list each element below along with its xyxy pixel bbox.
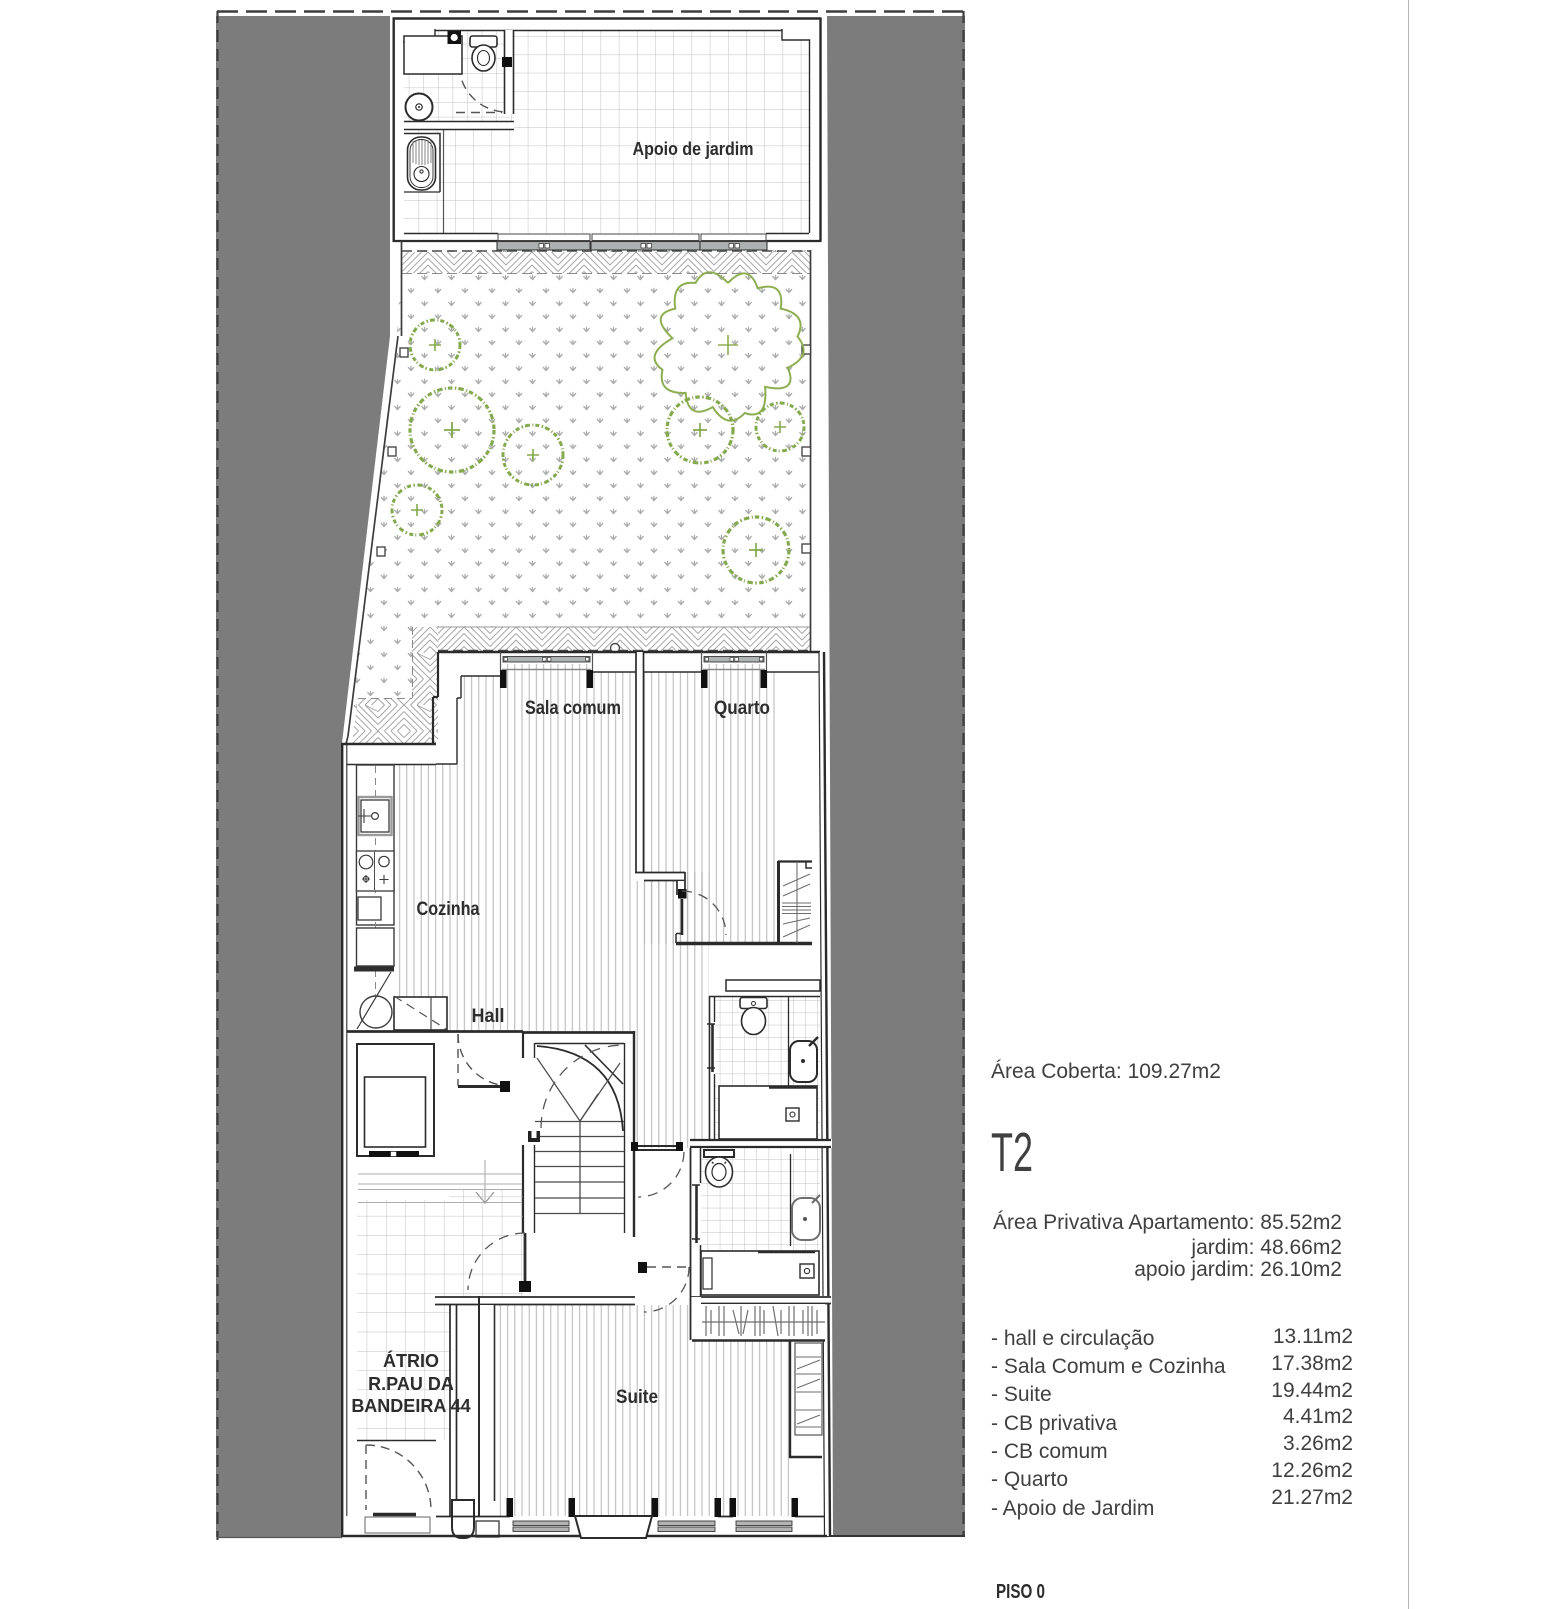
svg-text:19.44m2: 19.44m2 xyxy=(1271,1379,1353,1402)
svg-text:ÁTRIO: ÁTRIO xyxy=(383,1350,439,1371)
svg-text:- Apoio de Jardim: - Apoio de Jardim xyxy=(991,1497,1154,1520)
svg-text:21.27m2: 21.27m2 xyxy=(1271,1486,1353,1509)
svg-text:13.11m2: 13.11m2 xyxy=(1273,1325,1353,1348)
svg-text:Quarto: Quarto xyxy=(714,698,770,719)
svg-text:T2: T2 xyxy=(991,1121,1033,1183)
svg-text:- Suite: - Suite xyxy=(991,1383,1052,1406)
svg-text:12.26m2: 12.26m2 xyxy=(1271,1459,1353,1482)
svg-text:PISO 0: PISO 0 xyxy=(996,1581,1045,1603)
svg-text:Hall: Hall xyxy=(472,1006,505,1027)
svg-text:jardim: 48.66m2: jardim: 48.66m2 xyxy=(1190,1236,1342,1259)
svg-text:Área Privativa Apartamento: 85: Área Privativa Apartamento: 85.52m2 xyxy=(993,1211,1342,1234)
svg-text:Cozinha: Cozinha xyxy=(417,899,480,920)
svg-text:apoio jardim: 26.10m2: apoio jardim: 26.10m2 xyxy=(1134,1258,1342,1281)
svg-text:- hall e circulação: - hall e circulação xyxy=(991,1327,1154,1350)
svg-text:Sala comum: Sala comum xyxy=(525,698,621,719)
svg-text:Apoio de jardim: Apoio de jardim xyxy=(633,139,754,159)
svg-text:- Quarto: - Quarto xyxy=(991,1468,1068,1491)
svg-text:Área Coberta: 109.27m2: Área Coberta: 109.27m2 xyxy=(991,1060,1221,1083)
svg-text:Suite: Suite xyxy=(616,1387,658,1408)
svg-text:4.41m2: 4.41m2 xyxy=(1283,1405,1353,1428)
svg-text:- Sala Comum e Cozinha: - Sala Comum e Cozinha xyxy=(991,1355,1226,1378)
svg-text:BANDEIRA 44: BANDEIRA 44 xyxy=(351,1396,470,1416)
svg-text:3.26m2: 3.26m2 xyxy=(1283,1432,1353,1455)
svg-text:- CB privativa: - CB privativa xyxy=(991,1412,1117,1435)
svg-text:17.38m2: 17.38m2 xyxy=(1271,1352,1353,1375)
svg-text:- CB comum: - CB comum xyxy=(991,1440,1108,1463)
svg-text:R.PAU DA: R.PAU DA xyxy=(368,1374,454,1394)
